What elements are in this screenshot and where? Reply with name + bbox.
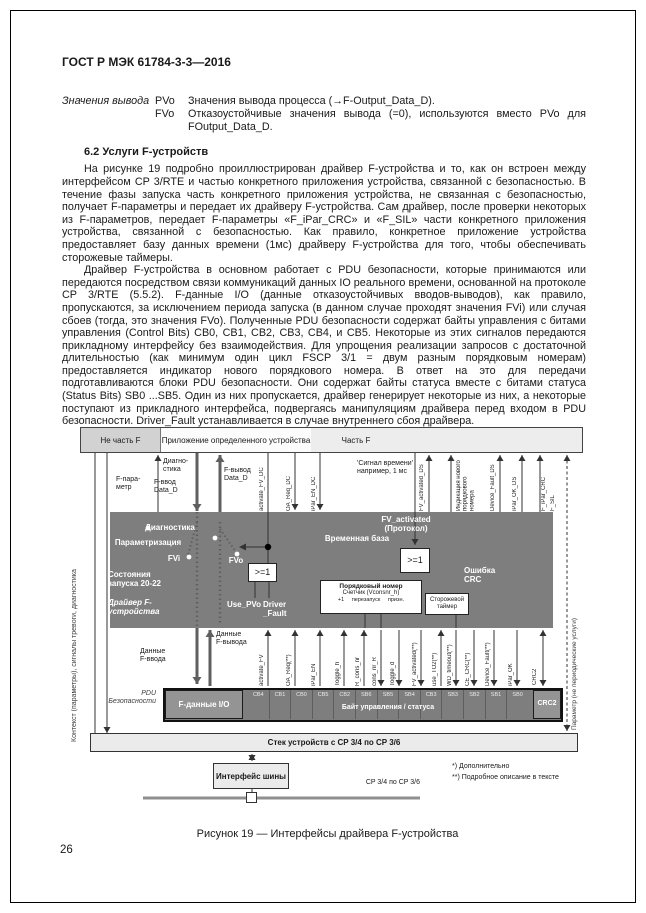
figure-param-rotated-label: Параметр (не периодические услуги) — [571, 482, 584, 730]
body-paragraph: Драйвер F-устройства в основном работает… — [62, 264, 586, 428]
f-output-data-label: Данные F-вывода — [216, 631, 258, 649]
page-number: 26 — [60, 844, 73, 856]
definition-abbr: FVo — [155, 108, 188, 134]
f-output-label: F-вывод Data_D — [224, 467, 262, 487]
control-status-caption: Байт управления / статуса — [248, 704, 528, 715]
definition-text: Отказоустойчивые значения вывода (=0), и… — [188, 108, 586, 134]
pdu-signal-label: R_cons_nr — [355, 631, 364, 686]
footnote-2: **) Подробное описание в тексте — [452, 774, 612, 784]
pdu-signal-label: iPar_OK — [508, 631, 517, 686]
zone-part-f: Часть F — [311, 428, 401, 452]
figure-left-rotated-label: Контекст (параметры), сигналы тревоги, д… — [71, 482, 84, 742]
body-paragraph: На рисунке 19 подробно проиллюстрирован … — [62, 163, 586, 264]
crc-error-label: Ошибка CRC — [464, 566, 504, 584]
definitions-block: Значения вывода PVo Значения вывода проц… — [62, 95, 586, 133]
pdu-signal-label: Toggle_h — [335, 631, 344, 686]
pdu-signal-label: cons_nr_R — [372, 631, 381, 686]
ipar-en-dc-label: iPar_EN_DC — [311, 456, 320, 511]
use-pvo-label: Use_PVo — [222, 600, 266, 609]
definition-text: Значения вывода процесса (→F-Output_Data… — [188, 95, 586, 108]
pdu-signal-label: WD_timeout(**) — [447, 631, 456, 686]
ipar-ok-ds-label: iPar_OK_DS — [512, 456, 521, 511]
crc2-box: CRC2 — [533, 690, 561, 719]
page-content: ГОСТ Р МЭК 61784-3-3—2016 Значения вывод… — [62, 55, 586, 428]
pdu-signal-label: Toggle_d — [390, 631, 399, 686]
crc2-signal-label: CRC2 — [532, 633, 541, 685]
driver-name-label: Драйвер F- устройства — [108, 598, 188, 618]
or-gate-1: >=1 — [248, 563, 277, 582]
watchdog-timer-box: Сторожевой таймер — [425, 593, 469, 615]
f-ipar-crc-label: F_iPar_CRC — [541, 456, 550, 511]
section-heading: 6.2 Услуги F-устройств — [62, 146, 586, 158]
zone-device-application: Приложение определенного устройства — [161, 428, 311, 452]
definition-term: Значения вывода — [62, 95, 155, 108]
definition-row: FVo Отказоустойчивые значения вывода (=0… — [62, 108, 586, 134]
sequence-box-text: Порядковый номер — [321, 583, 421, 590]
new-seq-indicator-label: Индикация нового порядкового номера — [456, 456, 481, 511]
pdu-signal-label: Device_Fault(**) — [485, 631, 494, 686]
pdu-signal-label: FV_activated(**) — [412, 631, 421, 686]
definition-row: Значения вывода PVo Значения вывода проц… — [62, 95, 586, 108]
sequence-box-text: Счетчик (Vconsnr_h) — [321, 590, 421, 596]
or-gate-2: >=1 — [400, 548, 430, 573]
footnote-1: *) Дополнительно — [452, 763, 584, 773]
sequence-number-box: Порядковый номерСчетчик (Vconsnr_h)+1 пе… — [320, 580, 422, 614]
sequence-box-text: +1 перезапуск призн. — [321, 597, 421, 603]
figure-19-diagram: Не часть FПриложение определенного устро… — [70, 427, 585, 847]
pdu-safety-label: PDU Безопасности — [88, 690, 156, 712]
pdu-signal-label: CE_CRC(**) — [465, 631, 474, 686]
fv-activated-protocol-label: FV_activated (Протокол) — [373, 515, 439, 533]
f-sil-label: F_SIL — [550, 456, 559, 511]
driver-fvi-label: FVi — [162, 554, 186, 563]
device-fault-ds-label: Device_Fault_DS — [490, 456, 499, 511]
time-base-label: Временная база — [320, 534, 394, 543]
f-parameter-label: F-пара- метр — [116, 476, 152, 496]
pdu-signal-label: use_TO2(**) — [432, 631, 441, 686]
f-input-label: F-ввод Data_D — [154, 479, 192, 499]
driver-parametrization-label: Параметризация — [103, 538, 193, 548]
bus-connector — [246, 792, 257, 803]
f-input-data-label: Данные F-ввода — [140, 648, 180, 666]
diagnostics-signal-label: Диагно- стика — [163, 458, 203, 478]
driver-fault-label: Driver _Fault — [263, 600, 295, 618]
pdu-signal-label: activate_FV — [259, 631, 268, 686]
oa-req-dc-label: OA_Req_DC — [286, 456, 295, 511]
fv-activated-ds-label: FV_activated_DS — [419, 456, 428, 511]
bus-interface-box: Интерфейс шины — [213, 763, 289, 789]
figure-caption: Рисунок 19 — Интерфейсы драйвера F-устро… — [70, 828, 585, 842]
activate-fv-dc-label: activate_FV_DC — [259, 456, 268, 511]
driver-startup-states-label: Состояния запуска 20-22 — [108, 570, 188, 590]
cp-range-label: CP 3/4 по CP 3/6 — [342, 779, 420, 789]
driver-fvo-label: FVo — [223, 556, 249, 565]
zone-not-part-f: Не часть F — [81, 428, 161, 452]
pdu-signal-label: iPar_EN — [311, 631, 320, 686]
document-header: ГОСТ Р МЭК 61784-3-3—2016 — [62, 55, 586, 69]
pdu-signal-label: OA_Req(**) — [286, 631, 295, 686]
definition-abbr: PVo — [155, 95, 188, 108]
driver-diagnostics-label: Диагностика — [125, 523, 215, 533]
device-stack-bar: Стек устройств с CP 3/4 по CP 3/6 — [90, 733, 578, 752]
f-data-io-box: F-данные I/O — [165, 690, 243, 719]
